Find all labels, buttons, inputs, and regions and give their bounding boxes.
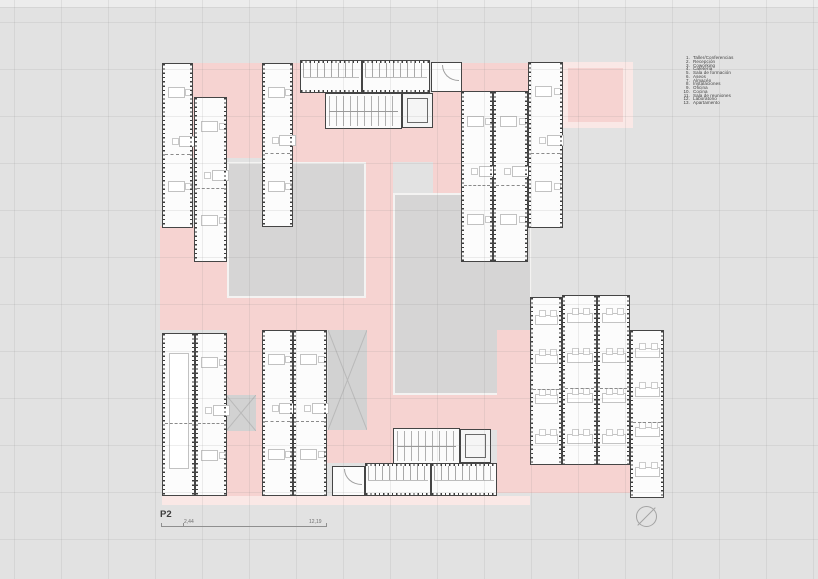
partition xyxy=(531,153,560,154)
partition xyxy=(464,185,490,186)
desk xyxy=(163,87,192,99)
circulation-bottom-band xyxy=(497,463,630,493)
class-table xyxy=(567,434,593,444)
partition xyxy=(565,388,594,389)
room-north xyxy=(431,62,462,92)
module-ne-3 xyxy=(528,62,563,228)
class-table xyxy=(535,434,559,444)
class-table xyxy=(535,315,559,325)
desk xyxy=(196,405,226,417)
module-sw-4 xyxy=(293,330,327,496)
class-table xyxy=(567,313,593,323)
partition xyxy=(296,421,324,422)
module-se-1 xyxy=(530,297,562,465)
wc-stalls xyxy=(434,466,494,481)
desk xyxy=(462,116,492,128)
class-table xyxy=(602,434,626,444)
desk xyxy=(529,181,562,193)
circulation-under-stair xyxy=(293,128,433,162)
partition xyxy=(198,423,224,424)
desk xyxy=(294,354,326,366)
lift-cab xyxy=(407,98,428,123)
desk xyxy=(294,403,326,415)
partition xyxy=(165,423,192,424)
partition xyxy=(165,154,190,155)
circulation-center-lower xyxy=(367,298,393,430)
desk xyxy=(494,166,527,178)
partition xyxy=(197,188,224,189)
door-arc xyxy=(442,65,459,81)
module-se-4 xyxy=(630,330,664,498)
module-wc-north-2 xyxy=(362,60,430,93)
module-wc-north-1 xyxy=(300,60,362,93)
circulation-above-stair2 xyxy=(393,395,497,430)
desk xyxy=(163,181,192,193)
desk xyxy=(494,214,527,226)
circulation-mid-band xyxy=(227,298,367,330)
module-wc-south-2 xyxy=(431,463,497,496)
desk xyxy=(163,136,192,148)
desk xyxy=(195,215,226,227)
module-sw-2 xyxy=(195,333,227,496)
class-table xyxy=(635,348,660,358)
desk xyxy=(462,166,492,178)
scale-value-right: 12,19 xyxy=(309,519,322,525)
stair-north xyxy=(325,93,402,129)
legend-label: Apartamento xyxy=(693,101,720,105)
desk xyxy=(195,170,226,182)
class-table xyxy=(602,393,626,403)
desk xyxy=(263,87,292,99)
module-ne-1 xyxy=(461,91,493,262)
conference-table xyxy=(169,353,188,469)
plan-level-label: P2 xyxy=(160,509,172,520)
room-south xyxy=(332,466,365,496)
partition xyxy=(600,388,627,389)
desk xyxy=(294,449,326,461)
desk xyxy=(263,135,292,147)
wc-stalls xyxy=(365,63,427,78)
partition xyxy=(633,422,661,423)
desk xyxy=(529,135,562,147)
class-table xyxy=(535,394,559,404)
scale-bar: 2,44 12,19 xyxy=(161,526,327,527)
class-table xyxy=(635,427,660,437)
floor-plan-sheet: 1.Taller/Conferencias2.Recepción3.Cowork… xyxy=(0,0,818,579)
terrace-inner xyxy=(568,68,623,122)
desk xyxy=(494,116,527,128)
module-ne-2 xyxy=(493,91,528,262)
lift-north xyxy=(402,93,433,128)
scale-value-left: 2,44 xyxy=(184,519,194,525)
scale-tick-start xyxy=(161,523,162,527)
desk xyxy=(196,450,226,462)
desk xyxy=(529,86,562,98)
desk xyxy=(263,181,292,193)
wc-stalls xyxy=(368,466,428,481)
desk xyxy=(196,357,226,369)
module-se-3 xyxy=(597,295,630,465)
desk xyxy=(263,403,292,415)
desk xyxy=(195,121,226,133)
terrace-bottom-strip xyxy=(162,496,530,505)
module-sw-conference xyxy=(162,333,195,496)
desk xyxy=(462,214,492,226)
class-table xyxy=(567,353,593,363)
partition xyxy=(533,389,559,390)
void-small xyxy=(226,395,256,431)
partition xyxy=(496,185,525,186)
class-table xyxy=(567,393,593,403)
module-nw-1 xyxy=(162,63,193,228)
module-nw-2 xyxy=(194,97,227,262)
courtyard-west xyxy=(227,162,366,298)
class-table xyxy=(635,467,660,477)
north-arrow-icon xyxy=(636,506,657,527)
circulation-center-vertical xyxy=(362,162,393,298)
partition xyxy=(265,421,290,422)
module-sw-3 xyxy=(262,330,293,496)
door-arc xyxy=(344,469,362,485)
desk xyxy=(263,449,292,461)
partition xyxy=(265,153,290,154)
legend: 1.Taller/Conferencias2.Recepción3.Cowork… xyxy=(681,56,733,105)
legend-item-13: 13.Apartamento xyxy=(681,101,733,105)
lift-cab xyxy=(465,434,486,458)
stair-south xyxy=(393,428,460,464)
class-table xyxy=(602,313,626,323)
circulation-bottomright-vertical xyxy=(497,330,532,463)
void-large xyxy=(328,330,367,430)
legend-number: 13. xyxy=(681,101,693,105)
class-table xyxy=(602,353,626,363)
module-se-2 xyxy=(562,295,597,465)
desk xyxy=(263,354,292,366)
class-table xyxy=(635,387,660,397)
scale-tick-end xyxy=(326,523,327,527)
module-wc-south-1 xyxy=(365,463,431,496)
circulation-bottom-connector xyxy=(327,430,393,463)
module-nw-3 xyxy=(262,63,293,227)
lift-south xyxy=(460,429,491,463)
wc-stalls xyxy=(303,63,359,78)
class-table xyxy=(535,354,559,364)
